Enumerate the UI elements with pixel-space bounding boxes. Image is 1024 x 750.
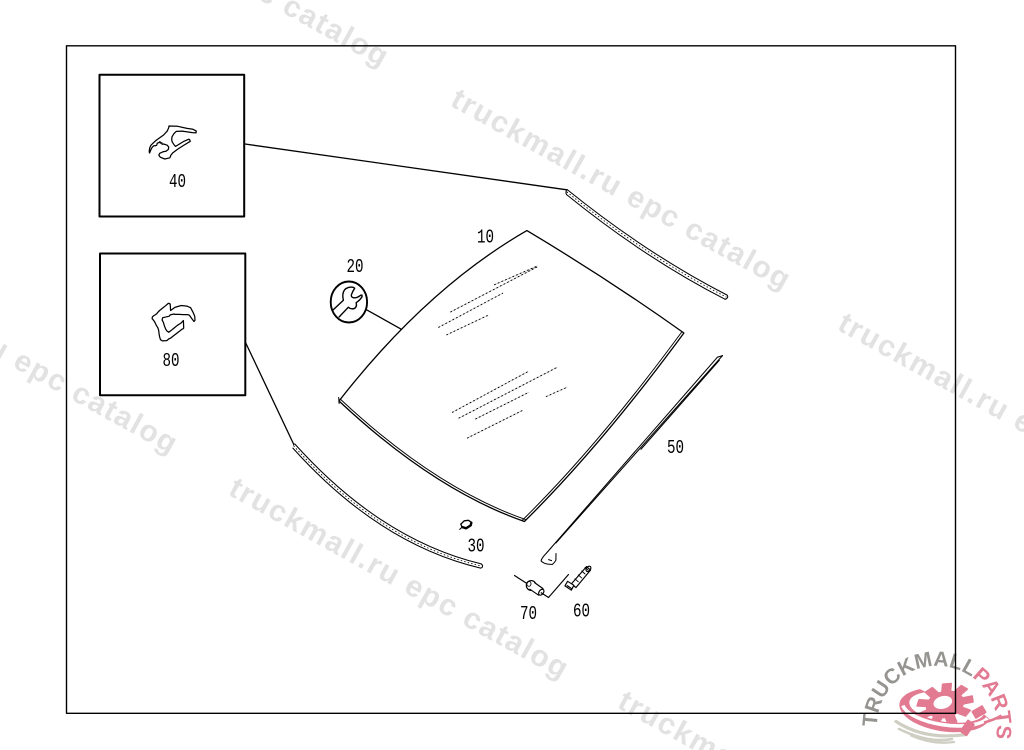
svg-text:30: 30 [468,536,485,558]
svg-text:50: 50 [667,437,684,459]
svg-text:80: 80 [163,350,180,372]
svg-text:60: 60 [573,601,590,623]
svg-text:40: 40 [169,171,186,193]
svg-text:20: 20 [347,256,364,278]
svg-text:70: 70 [520,603,537,625]
svg-text:truckmall.ru epc catalog: truckmall.ru epc catalog [833,306,1024,521]
svg-text:10: 10 [477,227,494,249]
svg-text:truckmall.ru epc catalog: truckmall.ru epc catalog [44,0,395,74]
